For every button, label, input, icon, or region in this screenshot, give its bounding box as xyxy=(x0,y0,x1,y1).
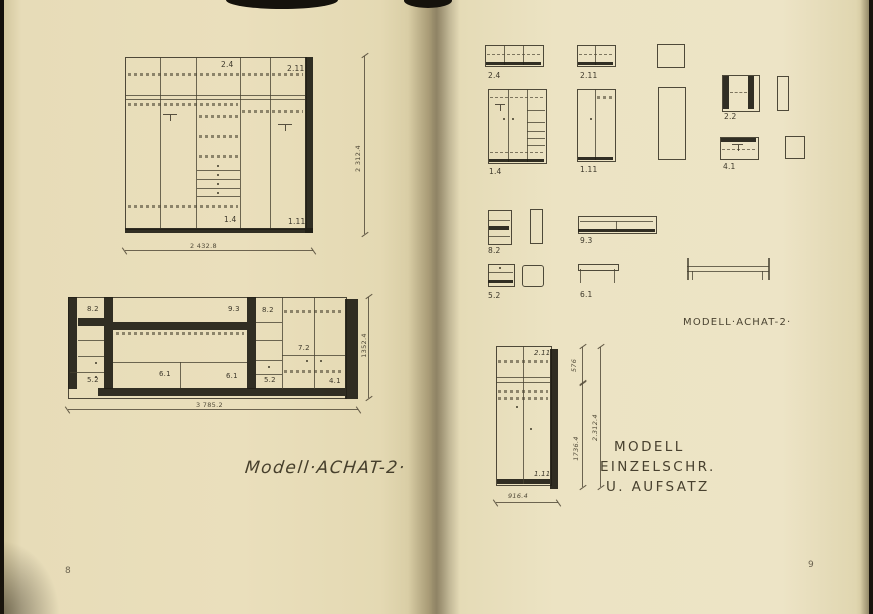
page-number-left: 8 xyxy=(65,566,71,576)
shelf-line xyxy=(256,360,282,361)
clothes-rail-mark xyxy=(495,104,505,105)
item-label: 2.4 xyxy=(488,72,501,79)
dim-line-top-segment xyxy=(582,347,583,383)
hatch-row xyxy=(284,310,342,313)
height-dimension-line xyxy=(364,56,365,234)
item-label: 8.2 xyxy=(488,247,501,254)
book-scan: 2.4 2.11 1.4 1.11 2 432.8 2 312.4 xyxy=(0,0,873,614)
shelf-line xyxy=(527,138,545,139)
unit-label: 8.2 xyxy=(87,306,99,313)
height-dimension-line xyxy=(368,297,369,398)
page-right-edge xyxy=(860,0,873,614)
clothes-rail-mark xyxy=(163,114,177,115)
unit-label: 5.2 xyxy=(87,377,99,384)
bed-rail xyxy=(687,266,769,267)
top-band-line xyxy=(125,99,305,100)
door-divider xyxy=(240,57,241,228)
unit-label: 7.2 xyxy=(298,345,310,352)
compartment-divider xyxy=(180,362,181,388)
wardrobe-side-panel xyxy=(305,57,313,233)
unit-label: 4.1 xyxy=(329,378,341,385)
hatch-row xyxy=(128,103,238,106)
note-line-1: MODELL xyxy=(600,437,720,457)
bed-headboard xyxy=(687,258,689,280)
aufsatz-separator xyxy=(496,377,550,378)
door-knob xyxy=(320,360,322,362)
height-dimension-label: 2 312.4 xyxy=(355,145,362,172)
wall-unit-black-upright xyxy=(247,297,256,389)
unit-label: 8.2 xyxy=(262,307,274,314)
drawer-knob xyxy=(217,165,219,167)
drawer-knob xyxy=(217,183,219,185)
base-strip xyxy=(578,229,655,232)
hatch-row xyxy=(498,397,548,400)
shelf-line xyxy=(78,340,104,341)
model-caption-left: Modell·ACHAT-2· xyxy=(244,458,407,478)
door-knob xyxy=(590,118,592,120)
unit-label: 5.2 xyxy=(264,377,276,384)
drawer-knob xyxy=(499,267,501,269)
dash-line xyxy=(730,92,747,93)
page-number-right: 9 xyxy=(808,560,814,570)
drawer-knob xyxy=(268,366,270,368)
door-divider xyxy=(595,89,596,160)
dim-label-total: 2.312.4 xyxy=(592,414,599,441)
wall-unit-black-shelf xyxy=(113,322,247,330)
item-side-view-small2 xyxy=(785,136,805,159)
item-label: 2.2 xyxy=(724,113,737,120)
item-side-view-thin xyxy=(777,76,789,111)
shelf-line xyxy=(527,145,545,146)
note-line-3: U. AUFSATZ xyxy=(600,477,720,497)
cabinet-bottom-label: 1.11 xyxy=(534,471,550,478)
dash-line xyxy=(490,152,543,153)
aufsatz-separator xyxy=(496,382,550,383)
clothes-rail-mark xyxy=(278,124,292,125)
item-side-view-rounded xyxy=(522,265,544,287)
hatch-row xyxy=(498,390,548,393)
door-divider xyxy=(270,57,271,228)
item-side-view-thin2 xyxy=(530,209,543,244)
hatch-row xyxy=(199,135,238,138)
base-strip xyxy=(489,159,544,162)
shelf-line xyxy=(527,110,545,111)
drawer-line xyxy=(197,170,240,171)
height-dimension-label: 1352.4 xyxy=(361,333,368,358)
drawer-line xyxy=(197,188,240,189)
item-outline xyxy=(488,264,515,287)
shelf-line xyxy=(527,122,545,123)
dash-line xyxy=(579,54,612,55)
base-strip xyxy=(578,62,613,65)
hatch-row xyxy=(116,332,244,335)
unit-label: 2.11 xyxy=(287,65,305,72)
bench-leg xyxy=(614,269,615,283)
wall-unit-black-shelf xyxy=(78,318,104,326)
hatch-row xyxy=(284,370,342,373)
dash-line xyxy=(722,149,755,150)
top-band-line xyxy=(125,95,305,96)
shelf-line xyxy=(488,220,510,221)
door-knob xyxy=(530,428,532,430)
base-strip xyxy=(488,280,513,283)
hatch-row xyxy=(128,73,303,76)
bed-rail xyxy=(687,271,769,272)
compartment-divider xyxy=(282,297,283,389)
door-divider xyxy=(160,57,161,228)
item-side-view-tall xyxy=(658,87,686,160)
side-bar xyxy=(748,76,754,109)
door-divider xyxy=(196,57,197,228)
model-caption-right: MODELL·ACHAT-2· xyxy=(683,317,791,328)
wall-unit-base-band xyxy=(98,388,345,396)
black-shelf xyxy=(489,226,509,230)
base-strip xyxy=(578,157,613,160)
drawer-line xyxy=(197,196,240,197)
hatch-row xyxy=(199,115,238,118)
cabinet-side-panel xyxy=(550,349,558,489)
drawer-knob xyxy=(217,174,219,176)
bench-leg xyxy=(580,269,581,283)
dash-line xyxy=(487,54,540,55)
wardrobe-plinth xyxy=(125,228,313,233)
shelf-line xyxy=(488,236,510,237)
corner-shadow xyxy=(0,540,60,614)
shelf-line xyxy=(256,340,282,341)
item-label: 1.11 xyxy=(580,166,598,173)
item-label: 9.3 xyxy=(580,237,593,244)
dim-line-body-segment xyxy=(582,383,583,487)
hatch-row xyxy=(199,155,238,158)
item-label: 6.1 xyxy=(580,291,593,298)
unit-label: 6.1 xyxy=(159,371,171,378)
wall-unit-black-upright xyxy=(68,297,77,389)
shelf-line xyxy=(282,355,345,356)
shelf-line xyxy=(78,356,104,357)
unit-label: 9.3 xyxy=(228,306,240,313)
item-label: 5.2 xyxy=(488,292,501,299)
hatch-row xyxy=(597,96,612,99)
note-line-2: EINZELSCHR. xyxy=(600,457,720,477)
hatch-row xyxy=(128,205,238,208)
unit-label: 6.1 xyxy=(226,373,238,380)
wall-unit-end-panel xyxy=(345,299,358,399)
bed-footboard xyxy=(768,258,770,280)
bench-top xyxy=(578,264,619,271)
width-dimension-line xyxy=(125,250,313,251)
top-band xyxy=(721,138,756,142)
width-dimension-line xyxy=(68,409,358,410)
drawer-knob xyxy=(95,362,97,364)
drawer-line xyxy=(256,374,282,375)
width-dimension-label: 3 785.2 xyxy=(196,402,223,409)
item-label: 4.1 xyxy=(723,163,736,170)
drawer-line xyxy=(70,372,104,373)
door-knob xyxy=(503,118,505,120)
shelf-line xyxy=(256,322,282,323)
item-outline xyxy=(577,89,616,162)
door-knob xyxy=(512,118,514,120)
bed-leg xyxy=(692,271,693,280)
book-spine-shadow xyxy=(408,0,460,614)
unit-label: 1.4 xyxy=(224,216,237,223)
hatch-row xyxy=(498,360,548,363)
drawer-line xyxy=(488,272,513,273)
door-knob xyxy=(306,360,308,362)
wall-unit-black-upright xyxy=(104,297,113,389)
dim-label-width: 916.4 xyxy=(508,493,528,500)
width-dimension-label: 2 432.8 xyxy=(190,243,217,250)
dim-label-body: 1736.4 xyxy=(573,436,580,461)
item-side-view-small xyxy=(657,44,685,68)
item-label: 1.4 xyxy=(489,168,502,175)
center-mark xyxy=(732,144,743,145)
drawer-knob xyxy=(217,192,219,194)
cabinet-outline xyxy=(496,346,552,486)
bed-leg xyxy=(762,271,763,280)
unit-label: 1.11 xyxy=(288,218,306,225)
drawer-line xyxy=(197,179,240,180)
unit-label: 2.4 xyxy=(221,61,234,68)
side-bar xyxy=(723,76,729,109)
item-label: 2.11 xyxy=(580,72,598,79)
dash-line xyxy=(490,97,543,98)
dim-label-top: 576 xyxy=(571,359,578,372)
door-knob xyxy=(516,406,518,408)
hatch-row xyxy=(242,110,303,113)
dim-line-width xyxy=(496,502,558,503)
cabinet-top-label: 2.11 xyxy=(534,350,550,357)
door-divider xyxy=(523,346,524,484)
base-strip xyxy=(486,62,541,65)
cabinet-note: MODELL EINZELSCHR. U. AUFSATZ xyxy=(600,437,720,497)
shelf-line xyxy=(527,131,545,132)
